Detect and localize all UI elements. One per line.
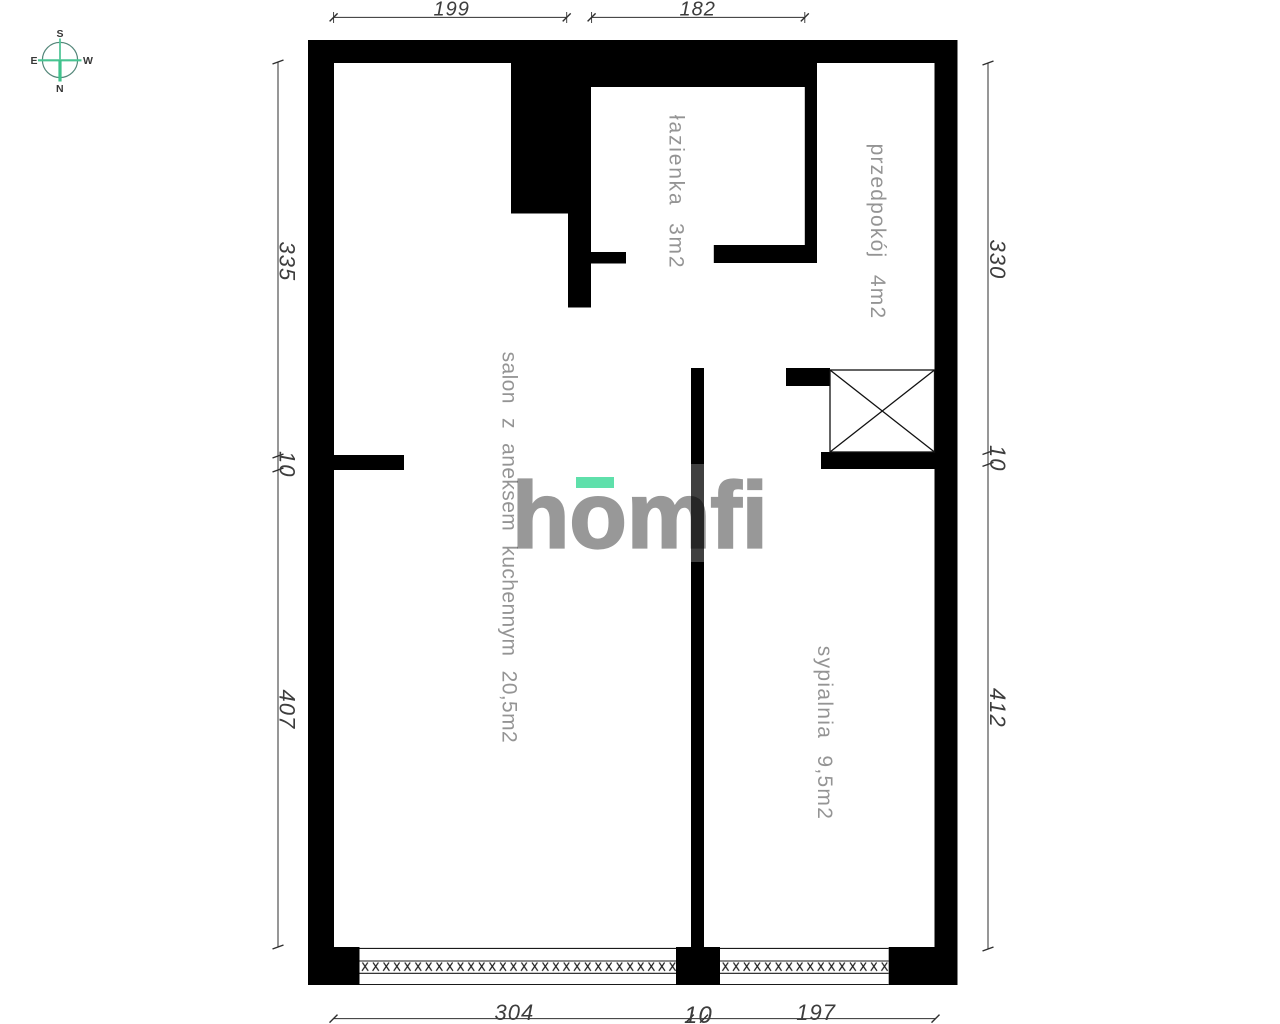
svg-text:E: E xyxy=(31,55,38,67)
svg-text:sypialnia 9,5m2: sypialnia 9,5m2 xyxy=(813,646,836,820)
svg-text:304: 304 xyxy=(495,1000,535,1024)
svg-text:homfi: homfi xyxy=(512,463,768,568)
svg-text:197: 197 xyxy=(796,1000,836,1024)
svg-text:przedpokój 4m2: przedpokój 4m2 xyxy=(866,144,889,320)
svg-text:330: 330 xyxy=(985,240,1010,280)
svg-text:407: 407 xyxy=(275,690,300,730)
svg-text:412: 412 xyxy=(985,688,1010,728)
svg-text:N: N xyxy=(56,83,64,95)
svg-text:182: 182 xyxy=(680,0,716,21)
svg-text:salon z aneksem kuchennym 20,5: salon z aneksem kuchennym 20,5m2 xyxy=(498,352,521,743)
svg-text:S: S xyxy=(57,28,64,40)
svg-text:335: 335 xyxy=(275,242,300,282)
svg-text:10: 10 xyxy=(684,1002,713,1024)
svg-text:łazienka 3m2: łazienka 3m2 xyxy=(665,115,688,269)
svg-text:199: 199 xyxy=(434,0,470,21)
svg-text:10: 10 xyxy=(985,445,1010,471)
svg-text:10: 10 xyxy=(275,451,300,477)
svg-text:W: W xyxy=(83,55,93,67)
